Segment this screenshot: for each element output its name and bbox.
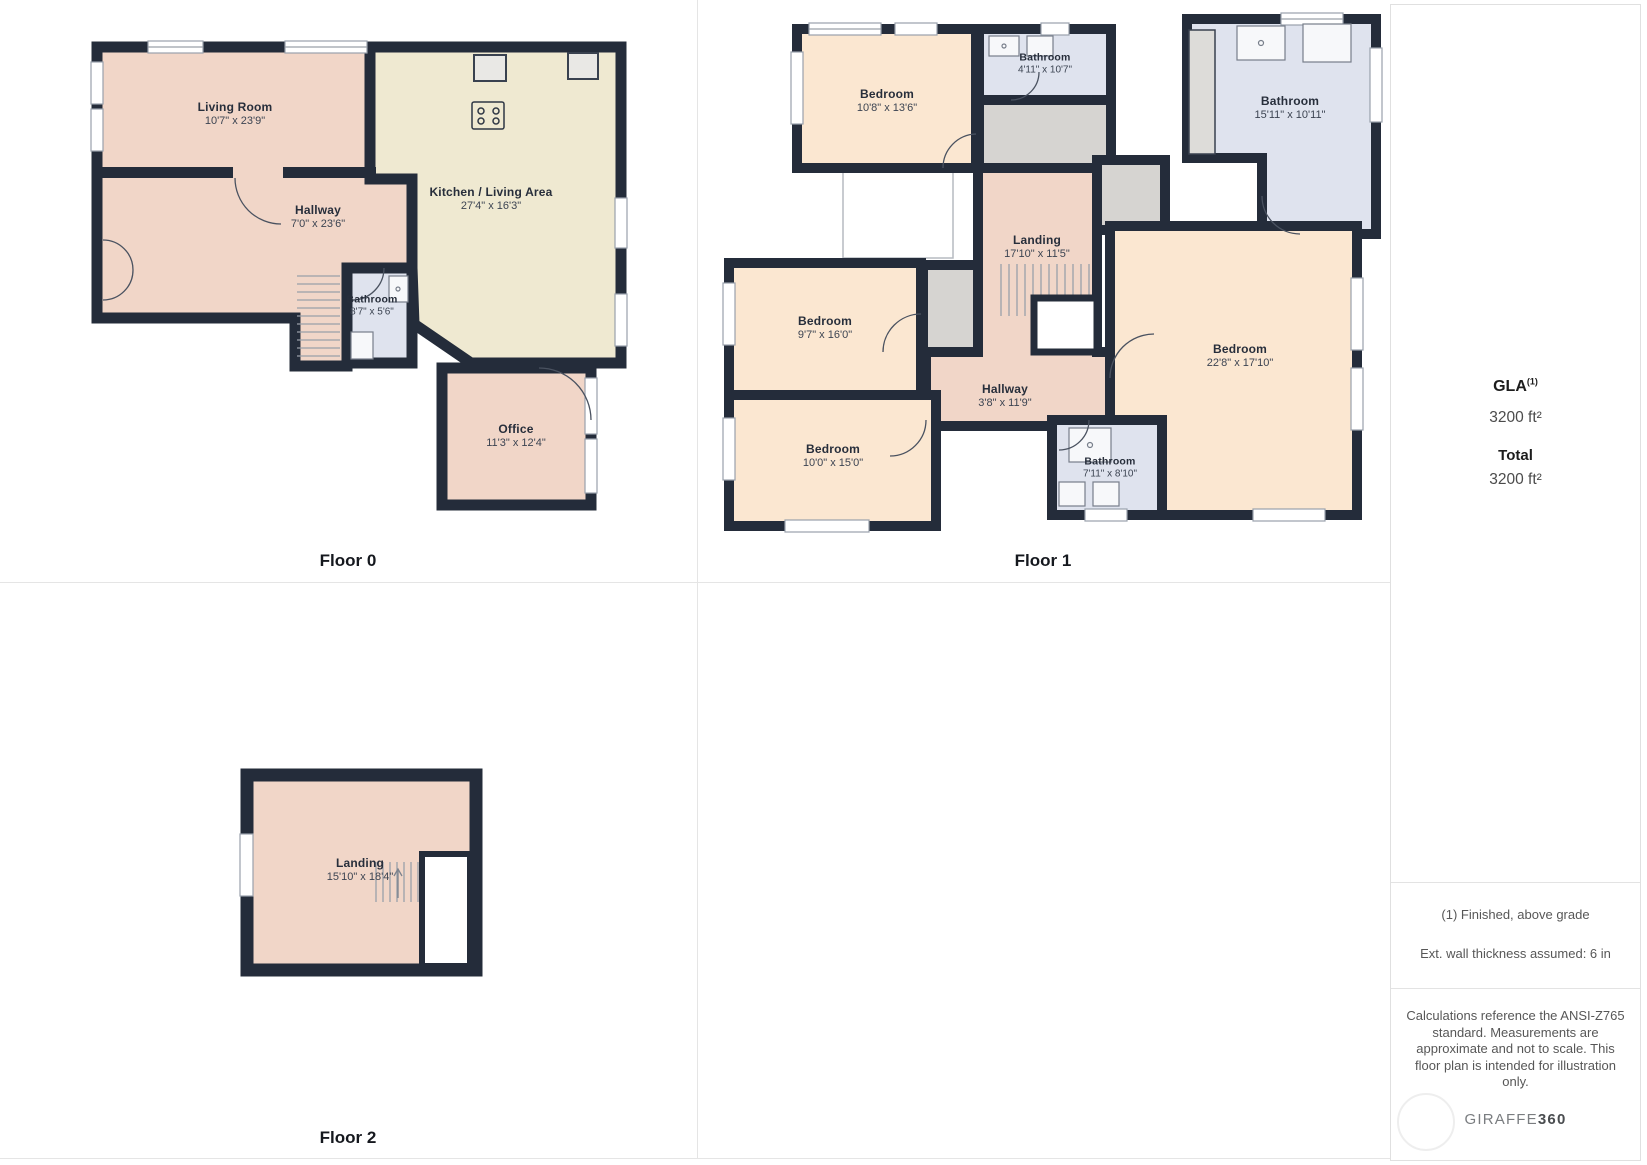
void-area bbox=[843, 172, 953, 258]
floor2-title: Floor 2 bbox=[320, 1128, 377, 1148]
chimney-box bbox=[474, 55, 506, 81]
interior-wall bbox=[283, 167, 376, 178]
sidebar-divider-2 bbox=[1391, 988, 1640, 989]
note-finished: (1) Finished, above grade bbox=[1391, 907, 1640, 922]
stair-void bbox=[1034, 298, 1097, 352]
sidebar-divider-1 bbox=[1391, 882, 1640, 883]
summary-sidebar: GLA(1) 3200 ft² Total 3200 ft² (1) Finis… bbox=[1390, 4, 1641, 1161]
room-label-office: Office 11'3" x 12'4" bbox=[486, 422, 546, 450]
closet-strip bbox=[1189, 30, 1215, 154]
floor1-plan bbox=[697, 0, 1390, 582]
gla-value: 3200 ft² bbox=[1391, 409, 1640, 427]
room-label-bedroom-main: Bedroom 22'8" x 17'10" bbox=[1207, 342, 1273, 370]
disclaimer-text: Calculations reference the ANSI-Z765 sta… bbox=[1405, 1008, 1626, 1091]
room-label-bathroom-bottomright: Bathroom 7'11" x 8'10" bbox=[1083, 456, 1137, 481]
room-label-bedroom-2: Bedroom 9'7" x 16'0" bbox=[798, 314, 852, 342]
floor0-title: Floor 0 bbox=[320, 551, 377, 571]
room-label-bathroom-topright: Bathroom 15'11" x 10'11" bbox=[1255, 94, 1326, 122]
gla-label: GLA(1) bbox=[1391, 377, 1640, 396]
room-label-hallway-f0: Hallway 7'0" x 23'6" bbox=[291, 203, 345, 231]
total-value: 3200 ft² bbox=[1391, 471, 1640, 489]
room-label-hallway-f1: Hallway 3'8" x 11'9" bbox=[978, 382, 1031, 410]
interior-wall bbox=[97, 167, 233, 178]
room-label-living-room: Living Room 10'7" x 23'9" bbox=[198, 100, 273, 128]
floor1-title: Floor 1 bbox=[1015, 551, 1072, 571]
roof-box bbox=[568, 53, 598, 79]
floorplan-page: Living Room 10'7" x 23'9" Hallway 7'0" x… bbox=[0, 0, 1647, 1165]
floor0-plan bbox=[0, 0, 697, 582]
panel-divider-bottom bbox=[0, 1158, 1390, 1159]
brand-logo: GIRAFFE360 bbox=[1391, 1111, 1640, 1128]
gla-footnote-marker: (1) bbox=[1527, 377, 1538, 387]
stair-void bbox=[422, 854, 470, 966]
room-label-bedroom-3: Bedroom 10'0" x 15'0" bbox=[803, 442, 863, 470]
total-label: Total bbox=[1391, 447, 1640, 465]
room-label-bedroom-1: Bedroom 10'8" x 13'6" bbox=[857, 87, 917, 115]
room-label-bathroom-f0: Bathroom 8'7" x 5'6" bbox=[346, 294, 397, 319]
room-label-landing-f1: Landing 17'10" x 11'5" bbox=[1004, 233, 1070, 261]
note-wall-thickness: Ext. wall thickness assumed: 6 in bbox=[1391, 946, 1640, 961]
room-label-landing-f2: Landing 15'10" x 18'4" bbox=[327, 856, 393, 884]
room-label-kitchen: Kitchen / Living Area 27'4" x 16'3" bbox=[429, 185, 552, 213]
floor2-window bbox=[240, 834, 253, 896]
room-label-bathroom-top: Bathroom 4'11" x 10'7" bbox=[1018, 52, 1072, 77]
